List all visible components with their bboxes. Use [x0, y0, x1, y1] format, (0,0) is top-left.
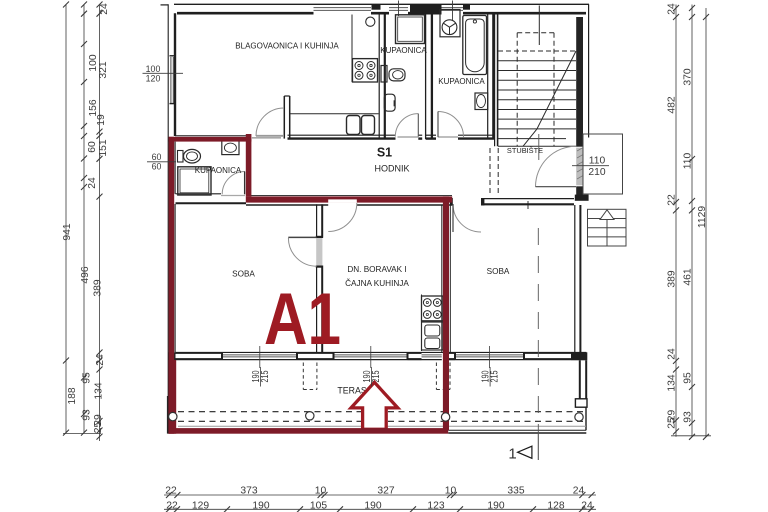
- svg-text:24: 24: [573, 485, 585, 496]
- svg-text:93: 93: [683, 411, 694, 423]
- svg-text:ČAJNA KUHINJA: ČAJNA KUHINJA: [345, 278, 409, 288]
- svg-text:370: 370: [683, 68, 694, 85]
- svg-text:128: 128: [547, 500, 564, 511]
- svg-text:24: 24: [581, 500, 593, 511]
- svg-text:389: 389: [667, 270, 678, 287]
- svg-text:134: 134: [94, 382, 105, 399]
- svg-text:110: 110: [683, 153, 694, 170]
- svg-text:STUBIŠTE: STUBIŠTE: [507, 146, 543, 155]
- svg-text:321: 321: [98, 61, 109, 78]
- svg-text:134: 134: [667, 374, 678, 391]
- svg-text:19: 19: [96, 114, 107, 126]
- svg-text:461: 461: [683, 268, 694, 285]
- svg-text:25: 25: [93, 422, 104, 434]
- svg-text:496: 496: [80, 266, 91, 283]
- svg-text:215: 215: [371, 370, 382, 382]
- svg-text:22: 22: [667, 194, 678, 206]
- svg-text:1: 1: [508, 446, 516, 463]
- svg-text:389: 389: [93, 279, 104, 296]
- svg-text:SOBA: SOBA: [232, 270, 255, 279]
- svg-text:188: 188: [67, 387, 78, 404]
- svg-text:22: 22: [165, 485, 177, 496]
- svg-text:100: 100: [146, 64, 161, 74]
- svg-text:93: 93: [82, 409, 93, 421]
- svg-text:25: 25: [667, 417, 678, 429]
- svg-text:24: 24: [95, 354, 106, 366]
- svg-text:HODNIK: HODNIK: [374, 164, 409, 174]
- svg-text:10: 10: [445, 485, 457, 496]
- svg-text:60: 60: [152, 152, 162, 162]
- svg-text:60: 60: [152, 162, 162, 172]
- svg-text:95: 95: [82, 372, 93, 384]
- svg-text:A1: A1: [264, 277, 341, 360]
- svg-text:327: 327: [377, 485, 394, 496]
- svg-text:1129: 1129: [697, 206, 708, 228]
- svg-text:941: 941: [62, 223, 73, 240]
- svg-text:95: 95: [683, 372, 694, 384]
- svg-text:215: 215: [260, 370, 271, 382]
- svg-text:482: 482: [667, 96, 678, 113]
- svg-text:24: 24: [667, 3, 678, 15]
- svg-text:373: 373: [240, 485, 257, 496]
- svg-text:129: 129: [192, 500, 209, 511]
- svg-text:10: 10: [315, 485, 327, 496]
- svg-text:335: 335: [507, 485, 524, 496]
- svg-text:110: 110: [589, 156, 606, 167]
- svg-text:22: 22: [166, 500, 178, 511]
- svg-text:120: 120: [146, 74, 161, 84]
- svg-text:BLAGOVAONICA I KUHINJA: BLAGOVAONICA I KUHINJA: [235, 42, 339, 51]
- svg-text:KUPAONICA: KUPAONICA: [438, 77, 485, 86]
- svg-text:24: 24: [99, 3, 110, 15]
- svg-text:190: 190: [364, 500, 381, 511]
- svg-text:60: 60: [87, 141, 98, 153]
- svg-text:156: 156: [88, 99, 99, 116]
- svg-text:210: 210: [588, 167, 605, 178]
- svg-text:151: 151: [98, 139, 109, 156]
- svg-text:190: 190: [252, 500, 269, 511]
- svg-text:24: 24: [667, 348, 678, 360]
- svg-text:KUPAONICA: KUPAONICA: [380, 46, 427, 55]
- svg-text:DN. BORAVAK I: DN. BORAVAK I: [347, 265, 406, 274]
- svg-text:KUPAONICA: KUPAONICA: [195, 166, 242, 175]
- svg-text:SOBA: SOBA: [487, 267, 510, 276]
- svg-text:24: 24: [87, 177, 98, 189]
- svg-text:123: 123: [427, 500, 444, 511]
- svg-text:215: 215: [490, 370, 501, 382]
- svg-text:S1: S1: [377, 146, 392, 160]
- svg-text:190: 190: [487, 500, 504, 511]
- svg-text:105: 105: [310, 500, 327, 511]
